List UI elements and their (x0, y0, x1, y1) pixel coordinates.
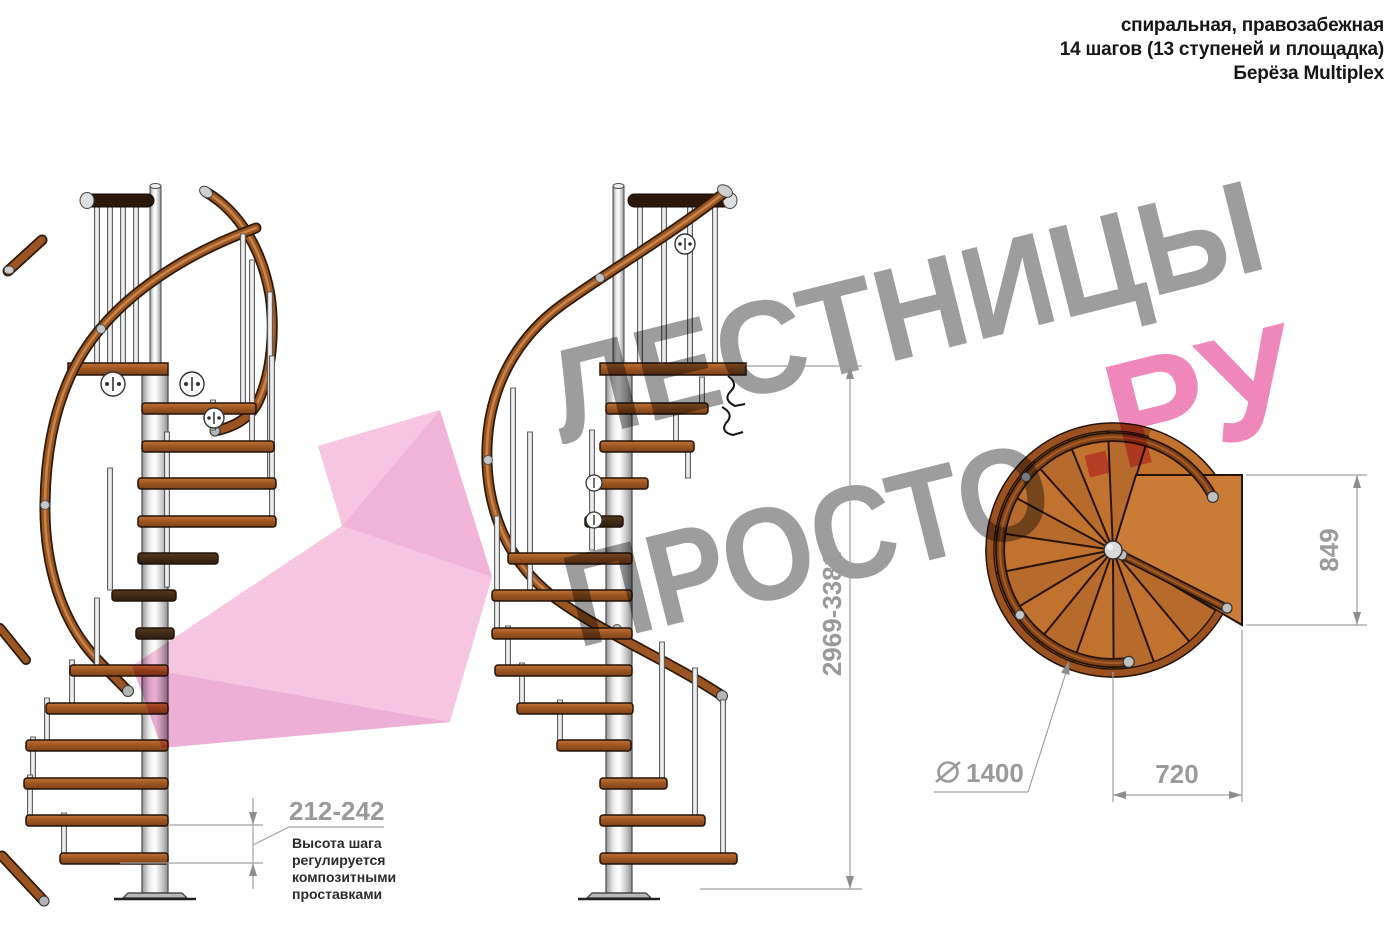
baluster (108, 207, 113, 365)
step (138, 478, 276, 489)
pole-cap (150, 184, 161, 189)
baluster (121, 207, 126, 365)
step-height-label: 212-242 (289, 796, 384, 826)
tread-width-label: 720 (1155, 759, 1198, 789)
handrail-sleeve (97, 325, 106, 334)
left-staircase-side-view (0, 184, 276, 907)
spiral-handrail-right (197, 184, 272, 436)
step (138, 516, 276, 527)
note-line: композитными (292, 869, 396, 885)
step (136, 628, 174, 639)
note-line: регулируется (292, 852, 385, 868)
header-line2: 14 шагов (13 ступеней и площадка) (1060, 39, 1384, 60)
handrail-end-cap (80, 193, 94, 209)
step (600, 778, 667, 789)
pole-base-flange (123, 893, 187, 898)
dimension-diameter: 1400 (934, 661, 1070, 792)
step (600, 815, 705, 826)
disc (180, 372, 204, 396)
diameter-icon (936, 762, 960, 782)
drawing-page: ЛЕСТНИЦЫ ПРОСТО .РУ 2969-3381 212-242 Вы… (0, 0, 1400, 938)
handrail-stubs (0, 240, 49, 906)
step (138, 553, 218, 564)
disc (101, 372, 125, 396)
step (26, 740, 168, 751)
total-height-label: 2969-3381 (817, 552, 847, 676)
staircase-drawing: ЛЕСТНИЦЫ ПРОСТО .РУ 2969-3381 212-242 Вы… (0, 0, 1400, 938)
center-pole-plan (1104, 541, 1122, 559)
step (26, 815, 168, 826)
handrail-end-cap (123, 686, 134, 697)
landing-depth-label: 849 (1314, 528, 1344, 571)
disc (586, 475, 602, 491)
pole-cap (613, 184, 624, 189)
step-height-note: Высота шага регулируется композитными пр… (292, 835, 396, 902)
newel-cap (1207, 491, 1218, 502)
step (60, 853, 168, 864)
diameter-label: 1400 (966, 758, 1024, 788)
step (600, 853, 737, 864)
handrail-sleeve (1016, 611, 1025, 620)
handrail-sleeve (596, 274, 605, 283)
step (517, 703, 633, 714)
pole-base-flange (587, 893, 651, 898)
step (142, 441, 274, 452)
pink-arrow-logo (132, 410, 492, 748)
header-line1: спиральная, правозабежная (1121, 15, 1384, 36)
note-line: Высота шага (292, 835, 382, 851)
header-line3: Берёза Multiplex (1233, 63, 1384, 84)
step (24, 778, 168, 789)
pole-highlight (1107, 544, 1113, 550)
handrail-sleeve (484, 456, 493, 465)
step (557, 740, 631, 751)
header: спиральная, правозабежная 14 шагов (13 с… (1060, 15, 1385, 84)
dimension-849 (1246, 475, 1367, 625)
step (112, 590, 176, 601)
newel-cap (1123, 656, 1134, 667)
step (142, 403, 256, 414)
handrail-sleeve (41, 501, 50, 510)
disc (675, 234, 695, 254)
disc (204, 408, 224, 428)
note-line: проставками (292, 886, 382, 902)
